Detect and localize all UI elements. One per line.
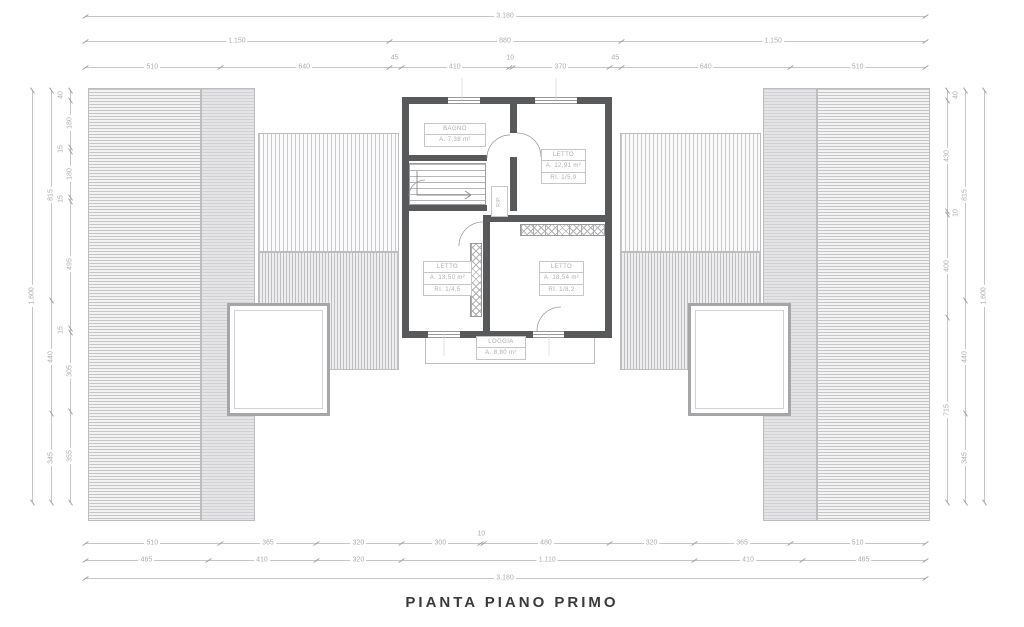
wall-vertical-upper: [510, 104, 517, 133]
dimension-label: 40: [953, 89, 960, 101]
dimension-tick: [945, 87, 950, 93]
dimension-line: [85, 67, 925, 68]
dimension-label: 45: [609, 55, 621, 62]
dimension-label: 510: [145, 540, 161, 547]
dimension-label: 45: [389, 55, 401, 62]
dimension-label: 430: [944, 148, 951, 164]
dimension-label: 10: [475, 531, 487, 538]
dimension-label: 640: [296, 64, 312, 71]
dimension-label: 815: [962, 187, 969, 203]
dimension-label: 320: [351, 557, 367, 564]
dimension-label: 495: [67, 257, 74, 273]
room-name: LOGGIA: [477, 337, 525, 348]
dimension-label: 1.600: [29, 285, 36, 307]
room-label-letto-top-right: LETTO A. 12,91 m² RI. 1/5,9: [541, 149, 586, 184]
dimension-label: 440: [962, 349, 969, 365]
dimension-tick: [30, 87, 35, 93]
dimension-label: 815: [48, 187, 55, 203]
dimension-label: 480: [538, 540, 554, 547]
dimension-label: 510: [145, 64, 161, 71]
dimension-label: 355: [67, 448, 74, 464]
dimension-label: 345: [48, 450, 55, 466]
window-bottom-right: [533, 331, 564, 338]
dimension-label: 320: [351, 540, 367, 547]
wall-bedrooms-divider: [483, 222, 490, 331]
dimension-label: 320: [644, 540, 660, 547]
dimension-label: 880: [497, 38, 513, 45]
dimension-line: [965, 90, 966, 502]
room-label-letto-bottom-right: LETTO A. 18,54 m² RI. 1/8,2: [539, 261, 584, 296]
dimension-label: 300: [432, 540, 448, 547]
room-label-bagno: BAGNO A. 7,38 m²: [424, 123, 486, 147]
wardrobe-horizontal: [520, 224, 605, 236]
wall-stairs-bottom: [402, 205, 487, 211]
dimension-label: 15: [58, 193, 65, 205]
dimension-label: 465: [139, 557, 155, 564]
floor-plan-drawing: BAGNO A. 7,38 m² LETTO A. 12,91 m² RI. 1…: [0, 0, 1024, 627]
dimension-tick: [922, 65, 928, 70]
dimension-line: [85, 543, 925, 544]
dimension-label: 440: [48, 349, 55, 365]
room-name: LETTO: [424, 262, 471, 273]
dimension-tick: [68, 87, 73, 93]
room-ri: RI. 1/4,5: [424, 285, 471, 295]
window-top-right: [535, 97, 577, 104]
dimension-label: 410: [254, 557, 270, 564]
dimension-tick: [922, 541, 928, 546]
room-area: A. 18,54 m²: [540, 273, 583, 284]
dimension-label: 1.600: [981, 285, 988, 307]
dimension-tick: [49, 87, 54, 93]
wall-bagno-bottom: [402, 155, 487, 161]
room-label-letto-bottom-left: LETTO A. 13,50 m² RI. 1/4,5: [423, 261, 472, 296]
dimension-label: 510: [850, 540, 866, 547]
roof-right-mid-upper: [620, 133, 761, 252]
dimension-label: 410: [740, 557, 756, 564]
room-area: A. 12,91 m²: [542, 161, 585, 172]
dimension-label: 10: [504, 55, 516, 62]
dimension-label: 365: [260, 540, 276, 547]
dimension-label: 365: [734, 540, 750, 547]
dimension-line: [51, 90, 52, 502]
drawing-title: PIANTA PIANO PRIMO: [405, 594, 618, 611]
wall-vertical-mid: [510, 157, 517, 211]
terrace-right: [688, 303, 791, 416]
room-label-loggia: LOGGIA A. 8,80 m²: [476, 336, 526, 360]
dimension-label: 400: [944, 258, 951, 274]
room-name: RIP.: [497, 196, 502, 207]
roof-left-mid-upper: [258, 133, 399, 252]
terrace-left: [227, 303, 330, 416]
dimension-label: 465: [856, 557, 872, 564]
dimension-tick: [963, 87, 968, 93]
dimension-label: 305: [67, 363, 74, 379]
dimension-tick: [922, 576, 928, 581]
dimension-label: 1.110: [537, 557, 558, 564]
dimension-label: 510: [850, 64, 866, 71]
dimension-label: 640: [698, 64, 714, 71]
window-top-left: [448, 97, 480, 104]
dimension-label: 40: [58, 89, 65, 101]
room-name: LETTO: [542, 150, 585, 161]
room-area: A. 7,38 m²: [425, 135, 485, 145]
room-label-rip: RIP.: [491, 186, 508, 217]
dimension-tick: [922, 39, 928, 44]
dimension-label: 180: [67, 166, 74, 182]
dimension-label: 345: [962, 450, 969, 466]
room-area: A. 8,80 m²: [477, 348, 525, 358]
room-ri: RI. 1/5,9: [542, 173, 585, 183]
dimension-label: 180: [67, 116, 74, 132]
dimension-label: 410: [447, 64, 463, 71]
room-area: A. 13,50 m²: [424, 273, 471, 284]
dimension-label: 1.150: [762, 38, 784, 45]
dimension-label: 15: [58, 324, 65, 336]
staircase: [409, 163, 486, 205]
dimension-label: 3.180: [494, 13, 516, 20]
dimension-tick: [982, 87, 987, 93]
dimension-label: 370: [553, 64, 569, 71]
room-ri: RI. 1/8,2: [540, 285, 583, 295]
window-bottom-left: [428, 331, 460, 338]
dimension-label: 3.180: [494, 575, 516, 582]
dimension-label: 715: [944, 402, 951, 418]
roof-left-outer: [88, 88, 201, 521]
dimension-label: 1.150: [226, 38, 248, 45]
dimension-label: 10: [953, 207, 960, 219]
room-name: LETTO: [540, 262, 583, 273]
roof-right-outer: [817, 88, 930, 521]
dimension-label: 15: [58, 143, 65, 155]
room-name: BAGNO: [425, 124, 485, 135]
dimension-tick: [922, 14, 928, 19]
dimension-tick: [922, 558, 928, 563]
